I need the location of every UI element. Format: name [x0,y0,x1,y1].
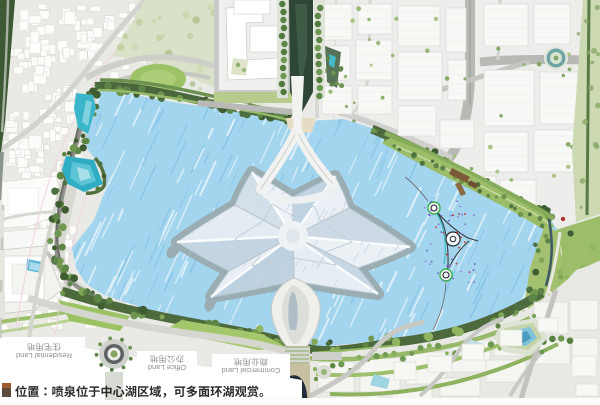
svg-text:Office Land: Office Land [148,363,186,372]
svg-text:Residential Land: Residential Land [16,351,72,360]
svg-text:Commercial Land: Commercial Land [222,366,281,375]
